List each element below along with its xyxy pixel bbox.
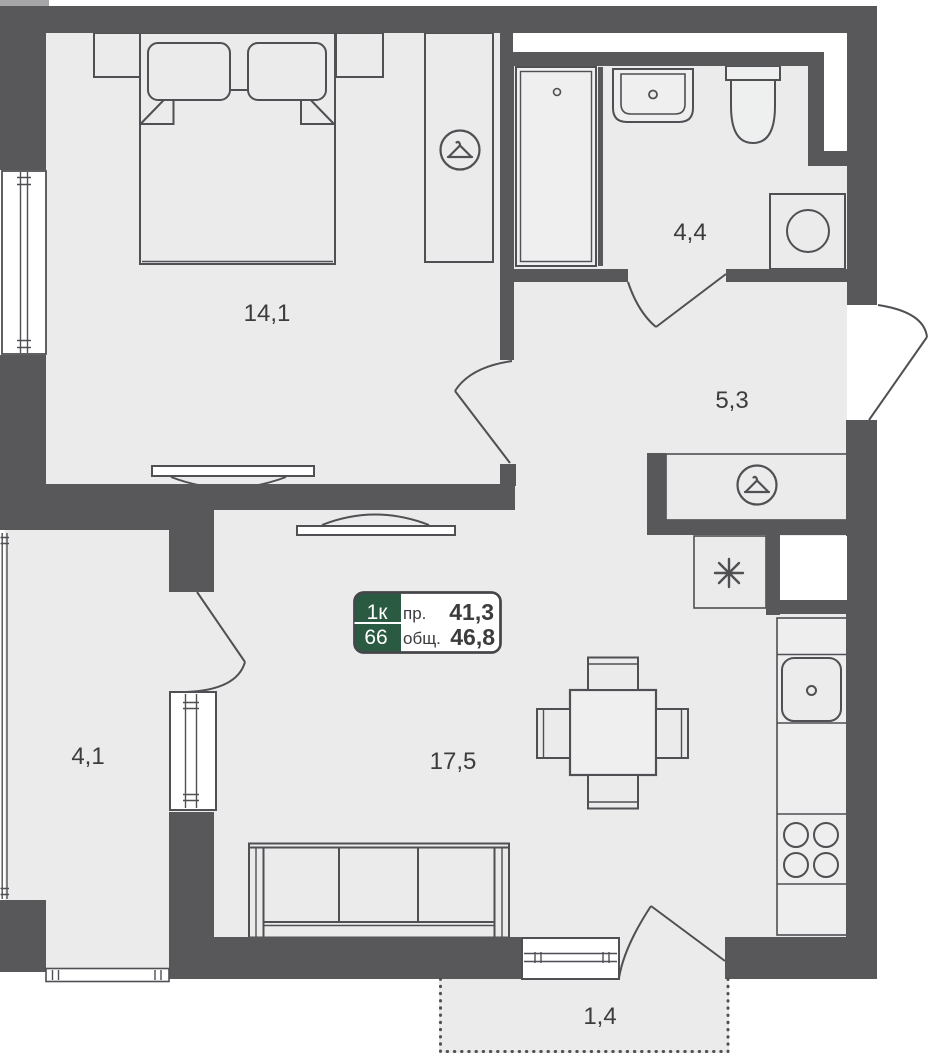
svg-text:14,1: 14,1 <box>244 300 291 327</box>
svg-text:46,8: 46,8 <box>450 624 495 650</box>
svg-text:общ.: общ. <box>403 629 441 648</box>
svg-text:4,1: 4,1 <box>71 743 104 770</box>
svg-text:1,4: 1,4 <box>583 1003 616 1030</box>
svg-text:41,3: 41,3 <box>449 599 494 625</box>
svg-text:пр.: пр. <box>403 604 426 623</box>
svg-text:4,4: 4,4 <box>673 219 706 246</box>
svg-text:5,3: 5,3 <box>715 387 748 414</box>
svg-text:1к: 1к <box>367 601 389 624</box>
svg-text:66: 66 <box>364 626 387 649</box>
svg-text:17,5: 17,5 <box>430 748 477 775</box>
